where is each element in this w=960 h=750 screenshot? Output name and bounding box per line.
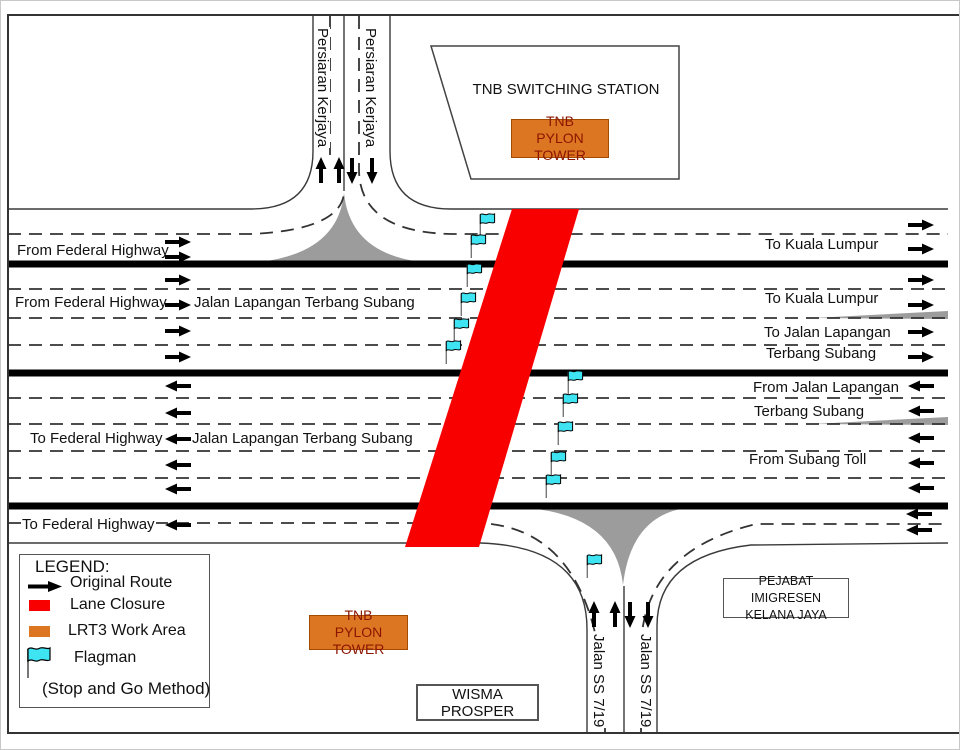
flagman-flag-icon bbox=[586, 553, 603, 579]
flagman-flag-icon bbox=[562, 392, 579, 418]
traffic-management-plan: TNB SWITCHING STATION TNB PYLON TOWER TN… bbox=[0, 0, 960, 750]
legend-original-route-label: Original Route bbox=[70, 574, 172, 592]
flagman-flag-icon bbox=[470, 233, 487, 259]
flagman-flag-icon bbox=[445, 339, 462, 365]
legend-note: (Stop and Go Method) bbox=[42, 679, 210, 699]
lrt3-work-area-swatch bbox=[29, 626, 50, 637]
legend: LEGEND: Original Route Lane Closure LRT3… bbox=[19, 554, 210, 708]
flagman-flag-icon bbox=[460, 291, 477, 317]
flagman-flag-icon bbox=[545, 473, 562, 499]
legend-flagman-label: Flagman bbox=[74, 649, 136, 667]
flagman-flag-icon bbox=[557, 420, 574, 446]
flagman-flag-icon bbox=[466, 262, 483, 288]
lane-closure-swatch bbox=[29, 600, 50, 611]
legend-lrt3-work-area-label: LRT3 Work Area bbox=[68, 622, 186, 640]
legend-lane-closure-label: Lane Closure bbox=[70, 596, 165, 614]
original-route-arrow-icon bbox=[28, 580, 62, 598]
